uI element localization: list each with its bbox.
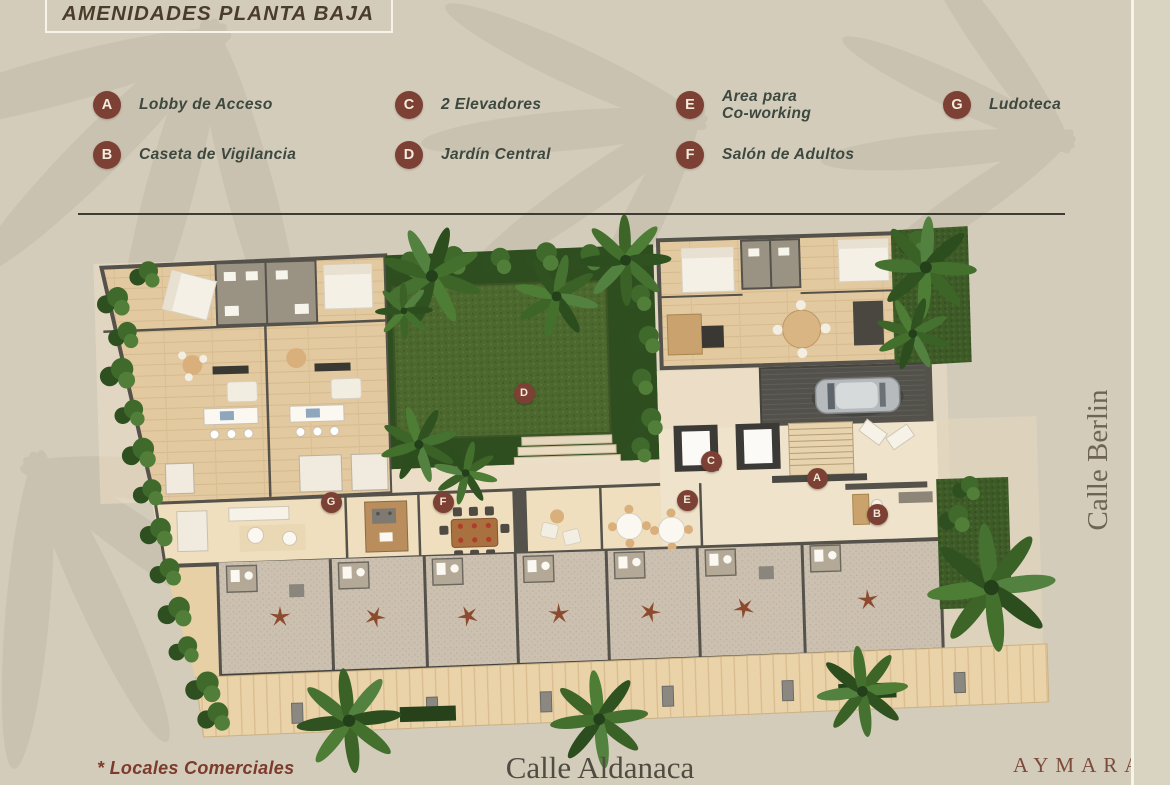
legend-item-f: FSalón de Adultos <box>676 130 854 180</box>
legend-item-d: DJardín Central <box>395 130 551 180</box>
plan-marker-f: F <box>433 492 454 513</box>
street-label-aldanaca: Calle Aldanaca <box>400 750 800 785</box>
plan-marker-a: A <box>807 468 828 489</box>
legend-badge-f: F <box>676 141 704 169</box>
right-margin-band <box>1134 0 1170 785</box>
legend-label: Lobby de Acceso <box>139 96 273 113</box>
legend-item-g: GLudoteca <box>943 80 1061 130</box>
site-plan-group <box>92 191 1086 785</box>
legend-column: ALobby de AccesoBCaseta de Vigilancia <box>93 80 296 180</box>
title-box: AMENIDADES PLANTA BAJA <box>45 0 393 33</box>
page: AMENIDADES PLANTA BAJA ALobby de AccesoB… <box>0 0 1170 785</box>
legend-badge-e: E <box>676 91 704 119</box>
legend-badge-g: G <box>943 91 971 119</box>
plan-marker-e: E <box>677 490 698 511</box>
legend-column: C2 ElevadoresDJardín Central <box>395 80 551 180</box>
legend-column: EArea para Co-workingFSalón de Adultos <box>676 80 854 180</box>
street-label-berlin: Calle Berlin <box>1082 310 1118 610</box>
legend-label: Salón de Adultos <box>722 146 854 163</box>
legend-label: Caseta de Vigilancia <box>139 146 296 163</box>
car <box>811 377 904 418</box>
plan-marker-g: G <box>321 492 342 513</box>
page-title: AMENIDADES PLANTA BAJA <box>62 2 374 26</box>
plan-marker-d: D <box>514 383 535 404</box>
legend-item-e: EArea para Co-working <box>676 80 854 130</box>
legend-badge-d: D <box>395 141 423 169</box>
legend-badge-c: C <box>395 91 423 119</box>
legend-badge-a: A <box>93 91 121 119</box>
legend-label: 2 Elevadores <box>441 96 541 113</box>
plan-marker-c: C <box>701 451 722 472</box>
divider-line <box>78 213 1065 215</box>
brand-logo: AYMARA <box>1013 753 1146 778</box>
right-divider-line <box>1131 0 1134 785</box>
elevator-2 <box>735 423 780 470</box>
legend-label: Area para Co-working <box>722 88 811 123</box>
right-apartment-block <box>658 233 902 368</box>
legend-item-b: BCaseta de Vigilancia <box>93 130 296 180</box>
legend-label: Jardín Central <box>441 146 551 163</box>
footnote-locales: * Locales Comerciales <box>97 758 294 779</box>
legend-column: GLudoteca <box>943 80 1061 130</box>
legend-item-c: C2 Elevadores <box>395 80 551 130</box>
legend-badge-b: B <box>93 141 121 169</box>
plan-marker-b: B <box>867 504 888 525</box>
legend-label: Ludoteca <box>989 96 1061 113</box>
legend-item-a: ALobby de Acceso <box>93 80 296 130</box>
